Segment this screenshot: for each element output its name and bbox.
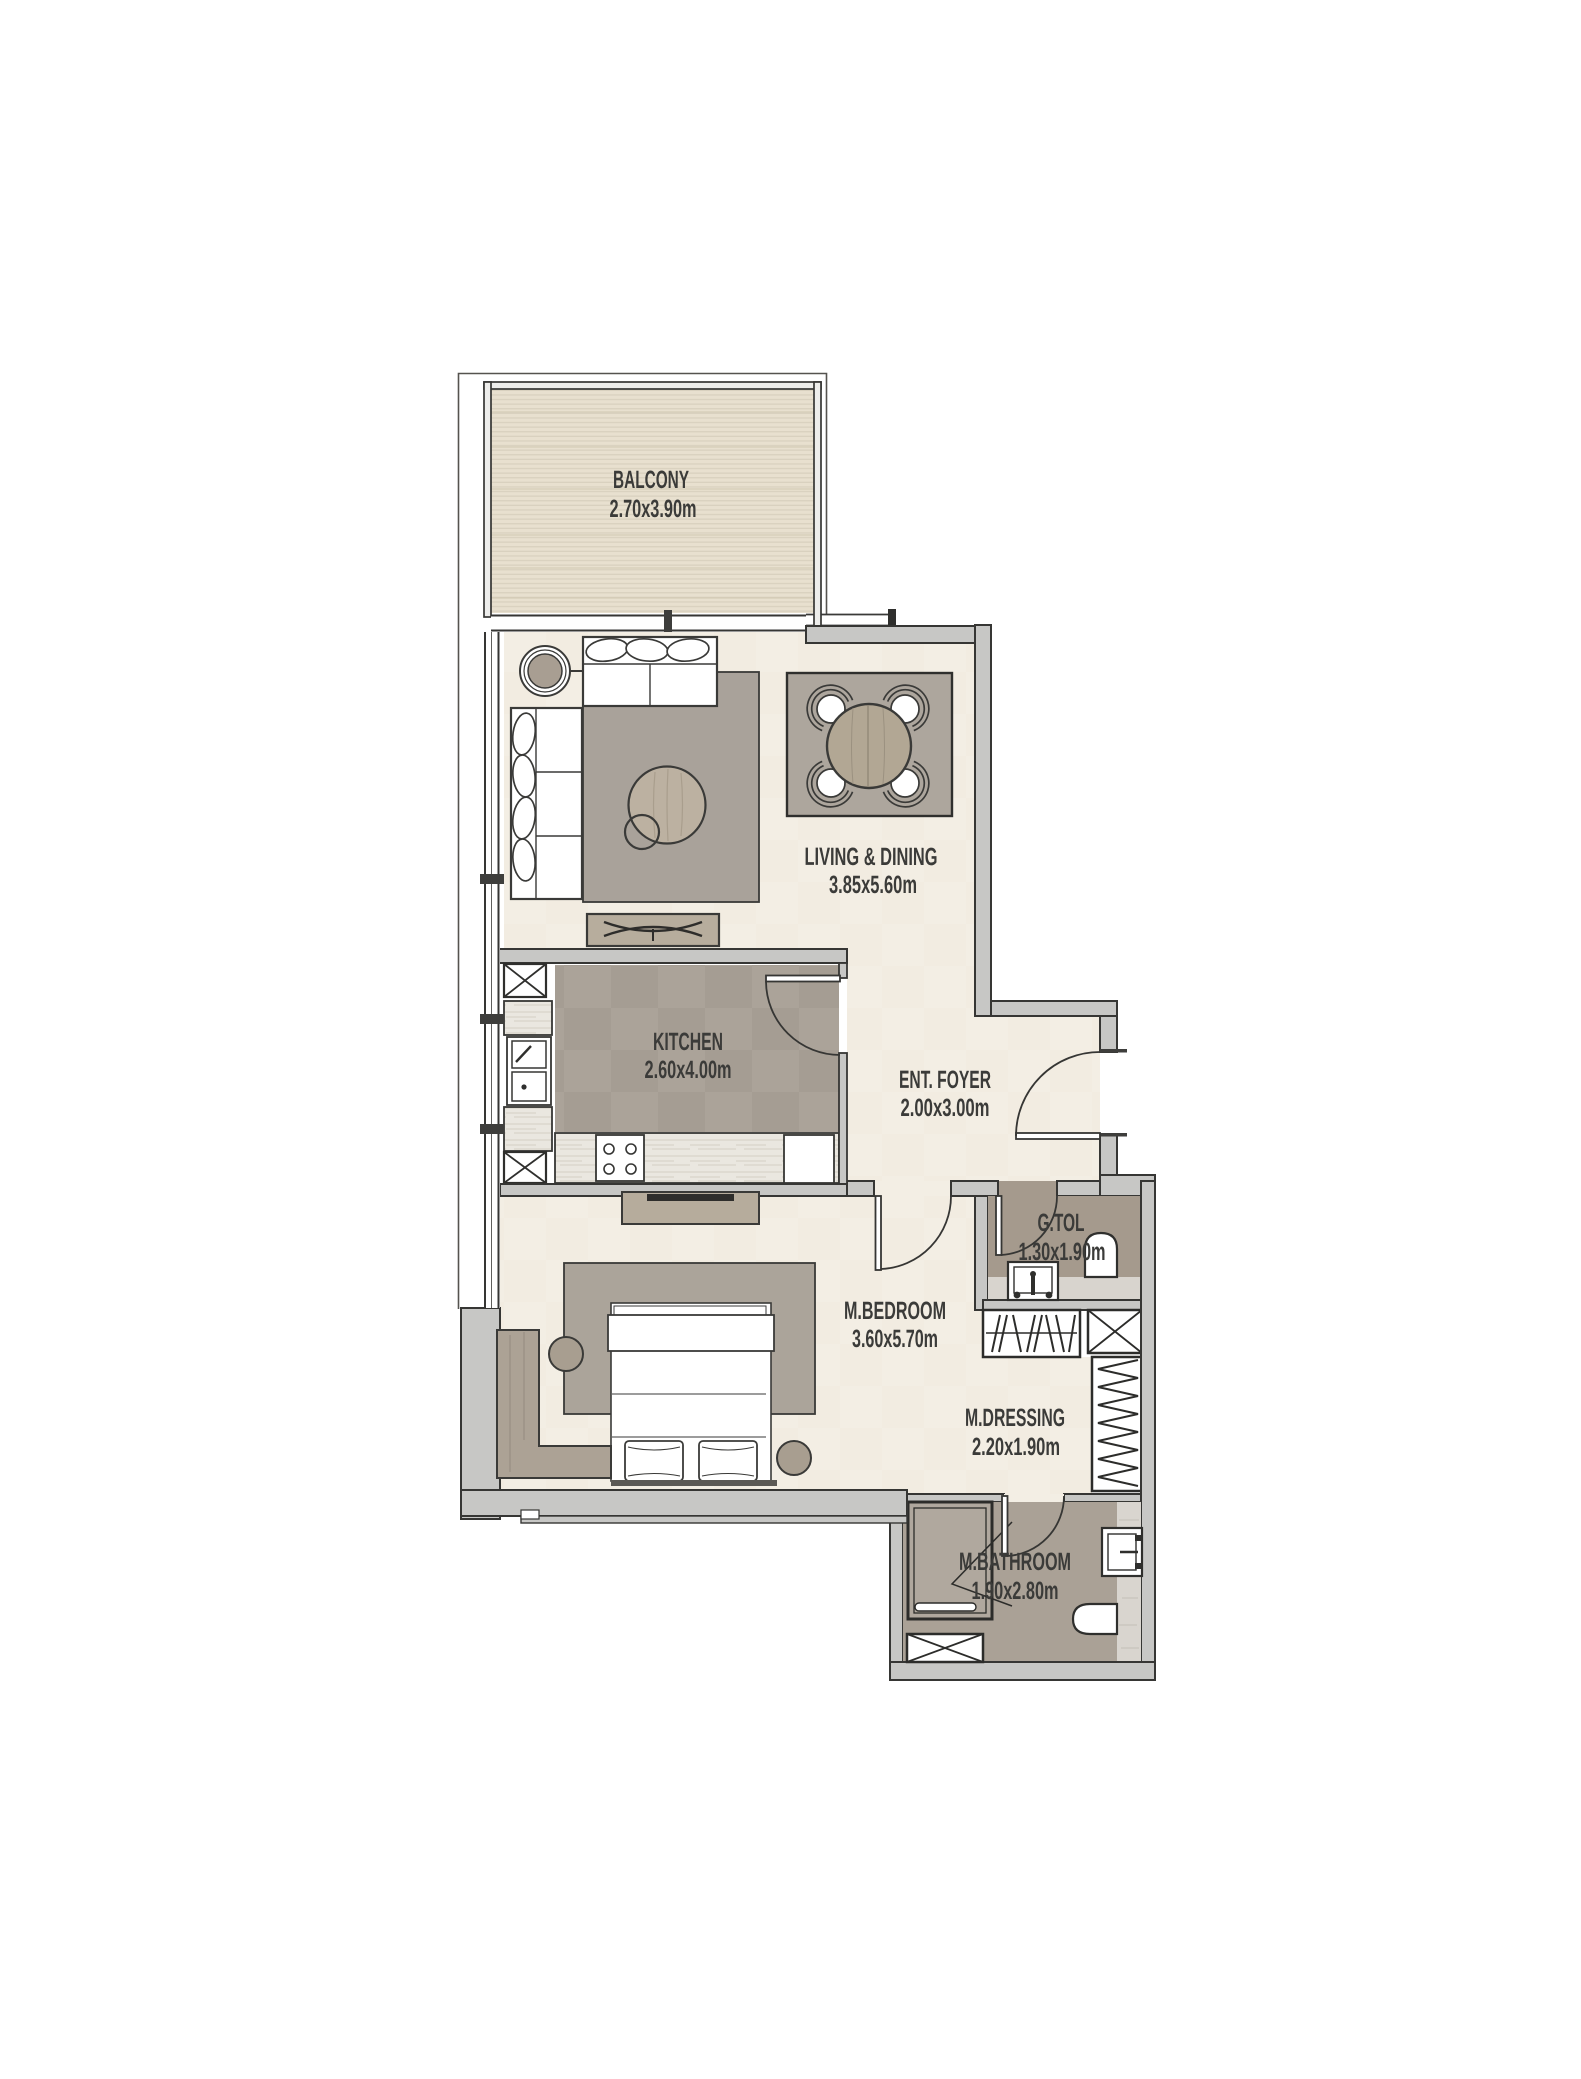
- svg-text:2.00x3.00m: 2.00x3.00m: [900, 1094, 989, 1122]
- svg-text:2.20x1.90m: 2.20x1.90m: [972, 1433, 1060, 1461]
- svg-text:G.TOL: G.TOL: [1037, 1209, 1084, 1237]
- svg-text:BALCONY: BALCONY: [613, 466, 689, 494]
- svg-text:M.BATHROOM: M.BATHROOM: [959, 1548, 1071, 1576]
- svg-text:3.60x5.70m: 3.60x5.70m: [852, 1325, 938, 1353]
- svg-text:1.90x2.80m: 1.90x2.80m: [971, 1577, 1058, 1605]
- svg-text:1.30x1.90m: 1.30x1.90m: [1018, 1238, 1105, 1266]
- svg-text:3.85x5.60m: 3.85x5.60m: [829, 871, 917, 899]
- svg-text:2.60x4.00m: 2.60x4.00m: [644, 1056, 731, 1084]
- svg-text:ENT. FOYER: ENT. FOYER: [899, 1066, 991, 1094]
- svg-text:2.70x3.90m: 2.70x3.90m: [609, 495, 696, 523]
- svg-text:LIVING & DINING: LIVING & DINING: [804, 843, 937, 871]
- svg-text:KITCHEN: KITCHEN: [653, 1028, 723, 1056]
- svg-text:M.BEDROOM: M.BEDROOM: [844, 1297, 946, 1325]
- svg-text:M.DRESSING: M.DRESSING: [965, 1404, 1065, 1432]
